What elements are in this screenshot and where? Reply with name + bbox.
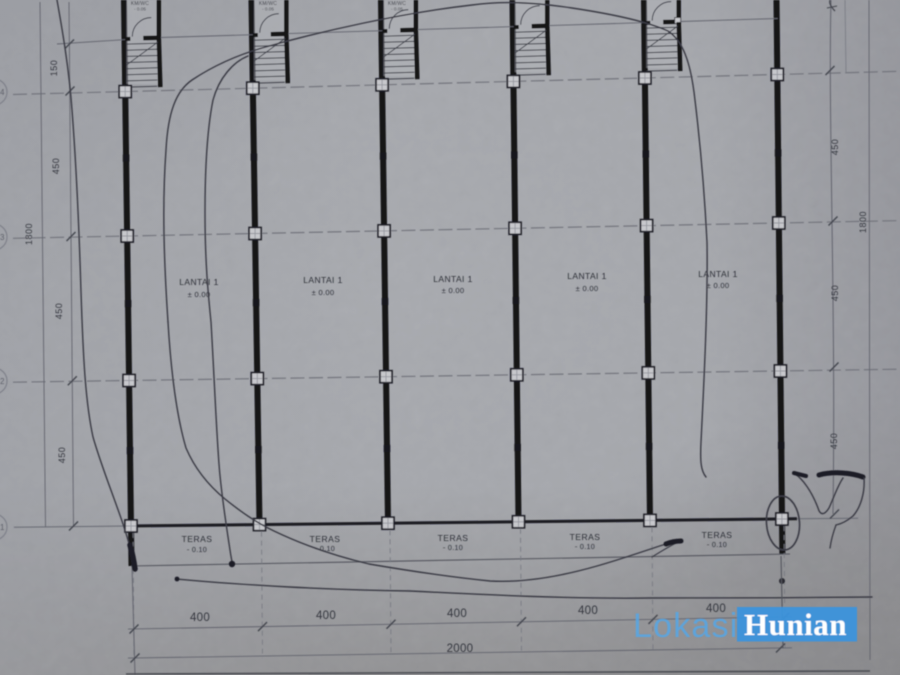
svg-text:LANTAI 1: LANTAI 1 <box>303 275 342 285</box>
svg-text:2000: 2000 <box>447 643 474 655</box>
svg-text:- 0.10: - 0.10 <box>707 540 727 549</box>
svg-text:450: 450 <box>54 303 64 320</box>
svg-text:TERAS: TERAS <box>310 534 341 544</box>
svg-text:TERAS: TERAS <box>438 533 469 543</box>
svg-text:- 0.10: - 0.10 <box>443 543 463 552</box>
svg-text:150: 150 <box>49 60 59 77</box>
svg-text:1800: 1800 <box>24 223 34 245</box>
svg-text:450: 450 <box>830 139 840 156</box>
svg-text:400: 400 <box>447 608 467 620</box>
svg-text:- 0.10: - 0.10 <box>187 545 207 554</box>
svg-text:LANTAI 1: LANTAI 1 <box>698 269 737 279</box>
svg-text:450: 450 <box>51 158 61 175</box>
svg-text:± 0.00: ± 0.00 <box>312 288 335 297</box>
svg-text:± 0.00: ± 0.00 <box>576 284 599 293</box>
svg-text:450: 450 <box>830 285 840 302</box>
svg-text:450: 450 <box>829 433 839 450</box>
svg-text:± 0.00: ± 0.00 <box>442 286 465 295</box>
svg-text:- 0.05: - 0.05 <box>262 7 274 12</box>
svg-text:Lokasi: Lokasi <box>633 607 738 645</box>
svg-text:± 0.00: ± 0.00 <box>188 290 211 299</box>
svg-text:± 0.00: ± 0.00 <box>707 281 730 290</box>
svg-text:LANTAI 1: LANTAI 1 <box>179 277 218 287</box>
svg-text:400: 400 <box>190 612 210 624</box>
svg-text:2: 2 <box>0 377 5 386</box>
svg-text:TERAS: TERAS <box>702 530 733 540</box>
svg-text:LANTAI 1: LANTAI 1 <box>567 271 606 281</box>
svg-text:450: 450 <box>57 447 67 464</box>
svg-text:3: 3 <box>0 233 5 242</box>
svg-text:- 0.05: - 0.05 <box>391 7 403 12</box>
svg-text:TERAS: TERAS <box>570 532 601 542</box>
svg-text:- 0.05: - 0.05 <box>134 7 146 12</box>
svg-text:1800: 1800 <box>858 211 868 233</box>
svg-text:Hunian: Hunian <box>744 607 847 642</box>
svg-text:400: 400 <box>578 605 598 617</box>
svg-text:400: 400 <box>316 610 336 622</box>
svg-text:1: 1 <box>0 523 5 532</box>
svg-text:4: 4 <box>0 88 5 97</box>
svg-text:LANTAI 1: LANTAI 1 <box>433 274 472 284</box>
svg-text:- 0.10: - 0.10 <box>575 542 595 551</box>
svg-text:TERAS: TERAS <box>182 534 213 544</box>
